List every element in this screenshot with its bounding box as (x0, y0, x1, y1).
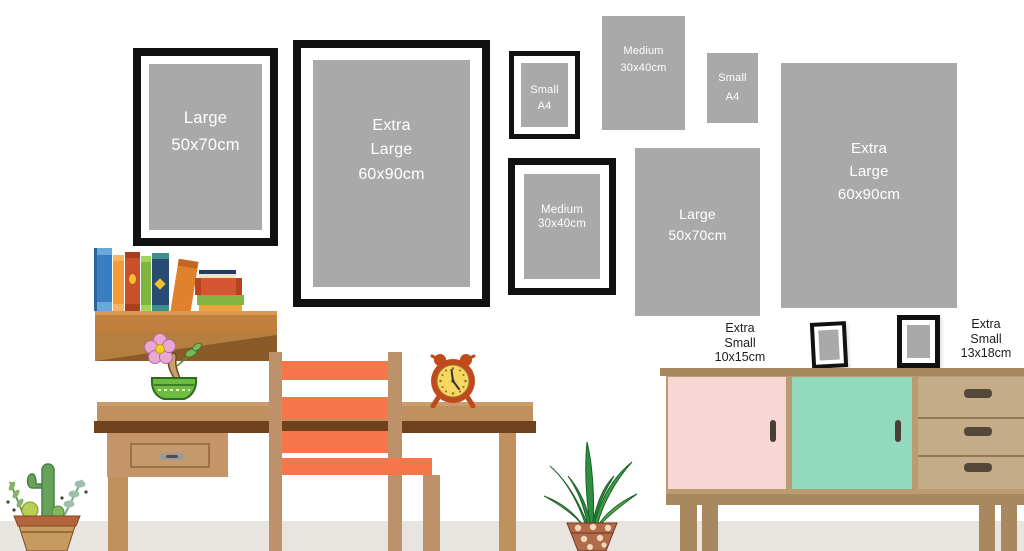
size-name: Extra (372, 114, 410, 139)
aloe-leaves (544, 442, 637, 527)
chair-slat (282, 397, 388, 419)
desk-drawer-face (130, 443, 210, 468)
size-name: Medium (623, 43, 663, 60)
book (125, 252, 140, 311)
sideboard-top (660, 368, 1024, 376)
label-extra-small-10x15: Extra Small 10x15cm (700, 321, 780, 365)
frame-extra-large-60x90-framed: Extra Large 60x90cm (293, 40, 490, 307)
photo-extra-small-13x18 (897, 315, 940, 368)
frame-mat: Extra Large 60x90cm (301, 48, 482, 299)
frame-large-50x70-framed: Large 50x70cm (133, 48, 278, 246)
print-area: Small A4 (521, 63, 568, 127)
cactus-pot (2, 440, 94, 551)
drawer-divider (918, 417, 1024, 419)
size-name: Small (970, 332, 1001, 347)
size-dims: A4 (726, 88, 740, 107)
size-name: Large (184, 105, 227, 132)
book-horizontal (195, 278, 242, 295)
frame-size-guide-illustration: Large 50x70cm Extra Large 60x90cm Small … (0, 0, 1024, 551)
frame-mat: Medium 30x40cm (515, 165, 609, 288)
size-name: Large (849, 160, 888, 183)
size-dims: 30x40cm (620, 60, 666, 77)
size-name: Small (724, 336, 755, 351)
frame-mat: Small A4 (514, 56, 575, 134)
alarm-clock (424, 350, 482, 408)
size-dims: 60x90cm (838, 183, 900, 206)
size-name: Large (371, 138, 413, 163)
print-area (907, 325, 930, 358)
desk-leg (108, 477, 128, 551)
pot-bowl (152, 378, 196, 399)
shelf-board (95, 311, 277, 332)
print-area: Medium 30x40cm (524, 174, 600, 279)
book-emblem (154, 278, 165, 289)
book-emblem (129, 274, 136, 284)
size-dims: 13x18cm (961, 346, 1012, 361)
sideboard-leg (1001, 505, 1017, 551)
size-dims: A4 (538, 98, 552, 114)
sideboard-leg (979, 505, 995, 551)
cactus-plants (6, 464, 87, 518)
sideboard-body (666, 376, 1024, 494)
size-dims: 60x90cm (358, 163, 424, 188)
print-extra-large-60x90: Extra Large 60x90cm (781, 63, 957, 308)
drawer-handle-inset (166, 455, 178, 458)
pot-body (19, 526, 75, 551)
size-name: Small (718, 69, 747, 88)
aloe-plant (540, 432, 640, 551)
frame-mat (814, 325, 844, 364)
size-dims: 50x70cm (171, 132, 239, 159)
pink-flower (145, 334, 176, 364)
drawer-handle (964, 389, 992, 398)
door-handle (895, 420, 901, 442)
door-handle (770, 420, 776, 442)
drawer-handle (160, 453, 184, 460)
book (141, 256, 151, 311)
size-name: Large (679, 204, 716, 225)
size-name: Small (530, 82, 559, 98)
sideboard-door-mint (792, 377, 912, 489)
book-horizontal (197, 295, 244, 305)
chair-leg (423, 475, 440, 551)
size-name: Extra (725, 321, 754, 336)
chair-post (388, 352, 402, 551)
chair-slat (282, 361, 388, 380)
desk-drawer-box (107, 433, 228, 477)
frame-mat: Large 50x70cm (141, 56, 270, 238)
size-dims: 10x15cm (715, 350, 766, 365)
size-dims: 50x70cm (668, 225, 726, 246)
size-name: Extra (971, 317, 1000, 332)
frame-small-a4-framed: Small A4 (509, 51, 580, 139)
sideboard-leg (680, 505, 697, 551)
drawer-handle (964, 427, 992, 436)
size-name: Medium (541, 203, 583, 217)
size-name: Extra (851, 137, 887, 160)
sideboard-drawers (918, 377, 1024, 489)
drawer-divider (918, 455, 1024, 457)
print-area: Large 50x70cm (149, 64, 262, 230)
frame-medium-30x40-framed: Medium 30x40cm (508, 158, 616, 295)
book (152, 253, 169, 311)
frame-mat (902, 320, 935, 363)
book (113, 255, 124, 311)
chair-seat (282, 458, 432, 475)
bonsai-flower-pot (144, 334, 204, 406)
book (94, 248, 112, 311)
print-area: Extra Large 60x90cm (313, 60, 470, 287)
print-area (818, 329, 840, 360)
size-dims: 30x40cm (538, 217, 586, 231)
photo-extra-small-10x15 (810, 321, 848, 369)
label-extra-small-13x18: Extra Small 13x18cm (946, 317, 1024, 361)
sideboard-door-pink (668, 377, 786, 489)
book-horizontal (199, 270, 236, 278)
drawer-handle (964, 463, 992, 472)
pot-rim (14, 516, 80, 526)
chair-slat (282, 431, 388, 453)
sideboard-apron (666, 494, 1024, 505)
print-medium-30x40: Medium 30x40cm (602, 16, 685, 130)
sideboard-leg (702, 505, 718, 551)
print-large-50x70: Large 50x70cm (635, 148, 760, 316)
chair-post (269, 352, 282, 551)
print-small-a4: Small A4 (707, 53, 758, 123)
desk-leg (499, 433, 516, 551)
